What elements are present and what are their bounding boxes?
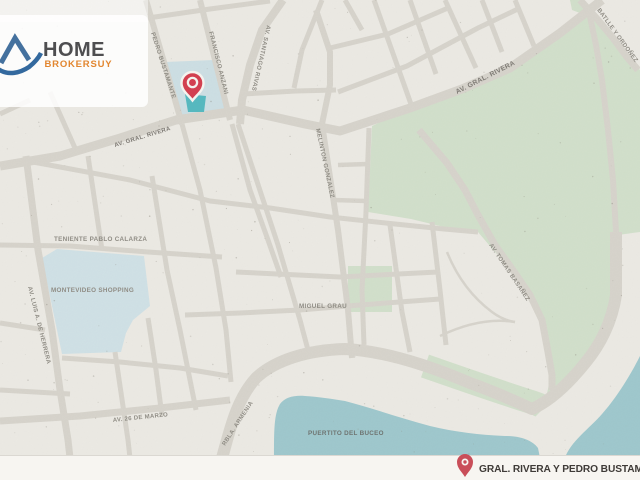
svg-text:BROKERSUY: BROKERSUY [45, 59, 113, 70]
svg-text:GRAL. RIVERA Y PEDRO BUSTAMANT: GRAL. RIVERA Y PEDRO BUSTAMANTE [479, 464, 640, 475]
svg-text:HOME: HOME [43, 39, 105, 61]
